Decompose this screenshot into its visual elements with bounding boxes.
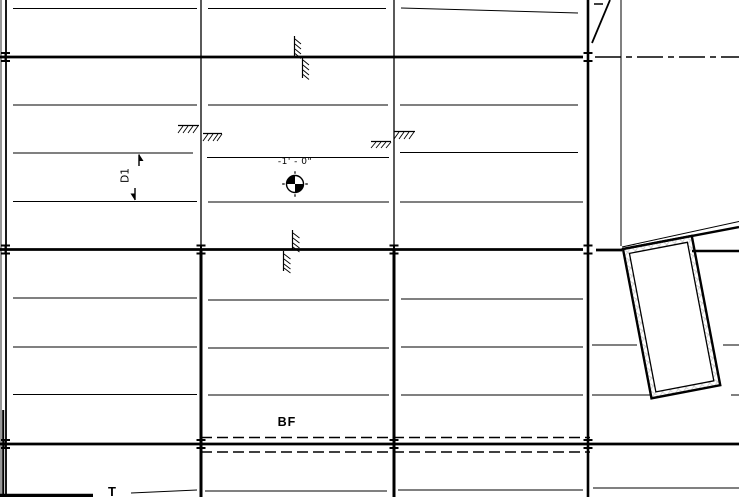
truncated-bottom-label[interactable]: T	[108, 485, 116, 497]
deck-span-tag[interactable]: D1	[121, 165, 134, 187]
plan-linework	[0, 0, 739, 497]
spot-elevation-value[interactable]: -1' - 0"	[274, 158, 316, 167]
rotated-shaft-walls[interactable]	[623, 236, 720, 398]
braced-frame-label[interactable]: BF	[272, 416, 302, 429]
slope-annotation-lines[interactable]	[592, 0, 610, 43]
foundation-step-hatch-icons	[178, 36, 415, 273]
framing-plan-canvas: -1' - 0" D1 BF T	[0, 0, 739, 497]
spot-elevation-target-icon[interactable]	[282, 171, 308, 196]
